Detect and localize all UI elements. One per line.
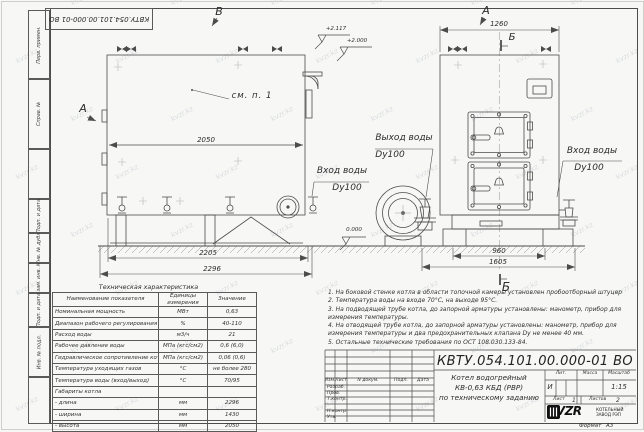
spec-col-value: Значение — [208, 293, 257, 307]
spec-cell-param: Расход воды — [53, 329, 159, 340]
sheet-value: 1 — [572, 398, 576, 404]
spec-row: Расход водым3/ч21 — [53, 329, 257, 340]
spec-cell-value: не более 280 — [208, 363, 257, 374]
lit-label: Лит. — [556, 372, 567, 377]
elevation-2000: +2.000 — [347, 39, 367, 45]
spec-row: Номинальная мощностьМВт0,63 — [53, 307, 257, 318]
titleblock-col-date: Дата — [417, 379, 429, 384]
spec-row: Температура уходящих газов°Сне более 280 — [53, 363, 257, 374]
spec-cell-param: Гидравлическое сопротивление котла — [53, 352, 159, 363]
note-3: 3. На подводящей трубе котла, до запорно… — [328, 306, 634, 323]
burner-blower — [308, 186, 430, 246]
dimension-1605: 1605 — [489, 259, 507, 266]
titleblock-col-list: Лист — [335, 379, 347, 384]
spec-cell-param: Рабочее давление воды — [53, 341, 159, 352]
spec-cell-param: Температура воды (вход/выход) — [53, 375, 159, 386]
sheets-label: Листов — [589, 398, 606, 403]
see-item-note: см. п. 1 — [232, 92, 273, 101]
spec-cell-value: 21 — [208, 329, 257, 340]
titleblock-signature-label: Т.контр. — [327, 398, 349, 403]
spec-row: - длинамм2296 — [53, 398, 257, 409]
spec-row: - ширинамм1430 — [53, 409, 257, 420]
label-water-outlet-dn: Dy100 — [375, 151, 404, 160]
spec-row: Диапазон рабочего регулирования%40-110 — [53, 318, 257, 329]
label-water-inlet-right: Вход воды — [567, 147, 617, 156]
label-water-inlet-right-dn: Dy100 — [574, 164, 603, 173]
spec-cell-param: - длина — [53, 398, 159, 409]
spec-cell-units — [159, 386, 208, 397]
logo-kvzr: KVZR — [547, 405, 582, 417]
note-2: 2. Температура воды на входе 70°С, на вы… — [328, 297, 634, 305]
label-water-outlet: Выход воды — [375, 134, 432, 143]
outlet-elbow — [303, 72, 322, 118]
spec-cell-units: мм — [159, 409, 208, 420]
titleblock-signature-label: Пров. — [327, 392, 349, 397]
product-title-line2: КВ-0,63 КБД (РВР) — [455, 383, 523, 392]
company-name: КОТЕЛЬНЫЙ ЗАВОД РЭП — [596, 407, 623, 418]
side-flange-icon — [277, 196, 299, 218]
spec-cell-value — [208, 386, 257, 397]
view-mark-a-side: А — [79, 103, 87, 114]
elevation-0000: 0.000 — [346, 228, 362, 234]
note-1: 1. На боковой стенке котла в области топ… — [328, 289, 634, 297]
titleblock-signature-label: Утв. — [327, 416, 349, 421]
spec-col-units: Единицы измерения — [159, 293, 208, 307]
scale-label: Масштаб — [608, 372, 630, 377]
company-line2: ЗАВОД РЭП — [596, 412, 623, 417]
label-water-inlet-left: Вход воды — [317, 167, 367, 176]
spec-cell-units: м3/ч — [159, 329, 208, 340]
section-label-b-top: Б — [509, 33, 516, 43]
view-mark-a-front: А — [482, 5, 490, 16]
format-label: Формат — [579, 424, 601, 430]
technical-notes: 1. На боковой стенке котла в области топ… — [328, 289, 634, 347]
spec-cell-units: МВт — [159, 307, 208, 318]
kvzr-emblem-icon — [547, 405, 560, 419]
dimension-2296: 2296 — [203, 266, 221, 273]
titleblock-col-izm: Изм. — [325, 379, 336, 384]
spec-cell-units: МПа (кгс/см2) — [159, 352, 208, 363]
spec-cell-param: Диапазон рабочего регулирования — [53, 318, 159, 329]
spec-cell-units: МПа (кгс/см2) — [159, 341, 208, 352]
spec-cell-units: мм — [159, 420, 208, 431]
spec-cell-param: Габариты котла — [53, 386, 159, 397]
spec-cell-units: °С — [159, 375, 208, 386]
reference-cross-marks — [114, 60, 547, 205]
elevation-2117: +2.117 — [326, 27, 346, 33]
spec-row: Рабочее давление водыМПа (кгс/см2)0,6 (6… — [53, 341, 257, 352]
spec-cell-value: 2050 — [208, 420, 257, 431]
spec-row: Гидравлическое сопротивление котлаМПа (к… — [53, 352, 257, 363]
product-title-line1: Котел водогрейный — [451, 373, 526, 382]
elevation-marks — [315, 35, 372, 250]
ground-line — [98, 246, 585, 253]
spec-table-section: Техническая характеристика Наименование … — [52, 283, 245, 432]
spec-cell-param: Номинальная мощность — [53, 307, 159, 318]
front-base — [443, 215, 573, 246]
spec-cell-units: мм — [159, 398, 208, 409]
dimension-2050: 2050 — [197, 137, 215, 144]
dimension-2205: 2205 — [199, 250, 217, 257]
mass-label: Масса — [583, 372, 598, 377]
spec-col-param: Наименование показателя — [53, 293, 159, 307]
spec-table-title: Техническая характеристика — [52, 283, 245, 291]
note-5: 5. Остальные технические требования по О… — [328, 339, 634, 347]
spec-cell-units: % — [159, 318, 208, 329]
inlet-valve-right — [559, 200, 578, 226]
product-title-line3: по техническому заданию — [439, 393, 539, 402]
spec-cell-value: 0,6 (6,0) — [208, 341, 257, 352]
spec-cell-param: - ширина — [53, 409, 159, 420]
view-mark-b: В — [215, 6, 223, 17]
scale-value: 1:15 — [611, 384, 627, 391]
lower-door — [468, 162, 533, 210]
note-4: 4. На отводящей трубе котла, до запорной… — [328, 322, 634, 339]
drain-valve-icon — [117, 197, 235, 213]
spec-cell-value: 70/95 — [208, 375, 257, 386]
titleblock-col-sign: Подп. — [394, 379, 408, 384]
spec-table: Наименование показателя Единицы измерени… — [52, 292, 257, 432]
spec-cell-value: 0,06 (0,6) — [208, 352, 257, 363]
dimension-1260: 1260 — [490, 21, 508, 28]
spec-row: Габариты котла — [53, 386, 257, 397]
air-vent-icon — [117, 46, 282, 52]
spec-cell-value: 1430 — [208, 409, 257, 420]
side-view — [100, 46, 322, 278]
spec-cell-param: - высота — [53, 420, 159, 431]
spec-cell-value: 0,63 — [208, 307, 257, 318]
spec-cell-value: 2296 — [208, 398, 257, 409]
titleblock-doc-number: КВТУ.054.101.00.000-01 ВО — [437, 354, 633, 369]
drawing-sheet: { "sheet": { "doc_number": "КВТУ.054.101… — [0, 0, 644, 430]
label-water-inlet-left-dn: Dy100 — [332, 184, 361, 193]
lit-value: И — [547, 384, 552, 391]
titleblock-col-doc: N докум. — [357, 379, 378, 384]
titleblock-signature-label: Разраб. — [327, 386, 349, 391]
spec-cell-units: °С — [159, 363, 208, 374]
upper-door — [468, 112, 533, 158]
sheets-value: 2 — [616, 398, 620, 404]
format-value: А3 — [606, 424, 613, 430]
dimension-960: 960 — [492, 248, 505, 255]
spec-cell-value: 40-110 — [208, 318, 257, 329]
spec-row: Температура воды (вход/выход)°С70/95 — [53, 375, 257, 386]
spec-cell-param: Температура уходящих газов — [53, 363, 159, 374]
spec-row: - высотамм2050 — [53, 420, 257, 431]
support-frame — [110, 215, 303, 246]
sheet-label: Лист — [553, 398, 565, 403]
